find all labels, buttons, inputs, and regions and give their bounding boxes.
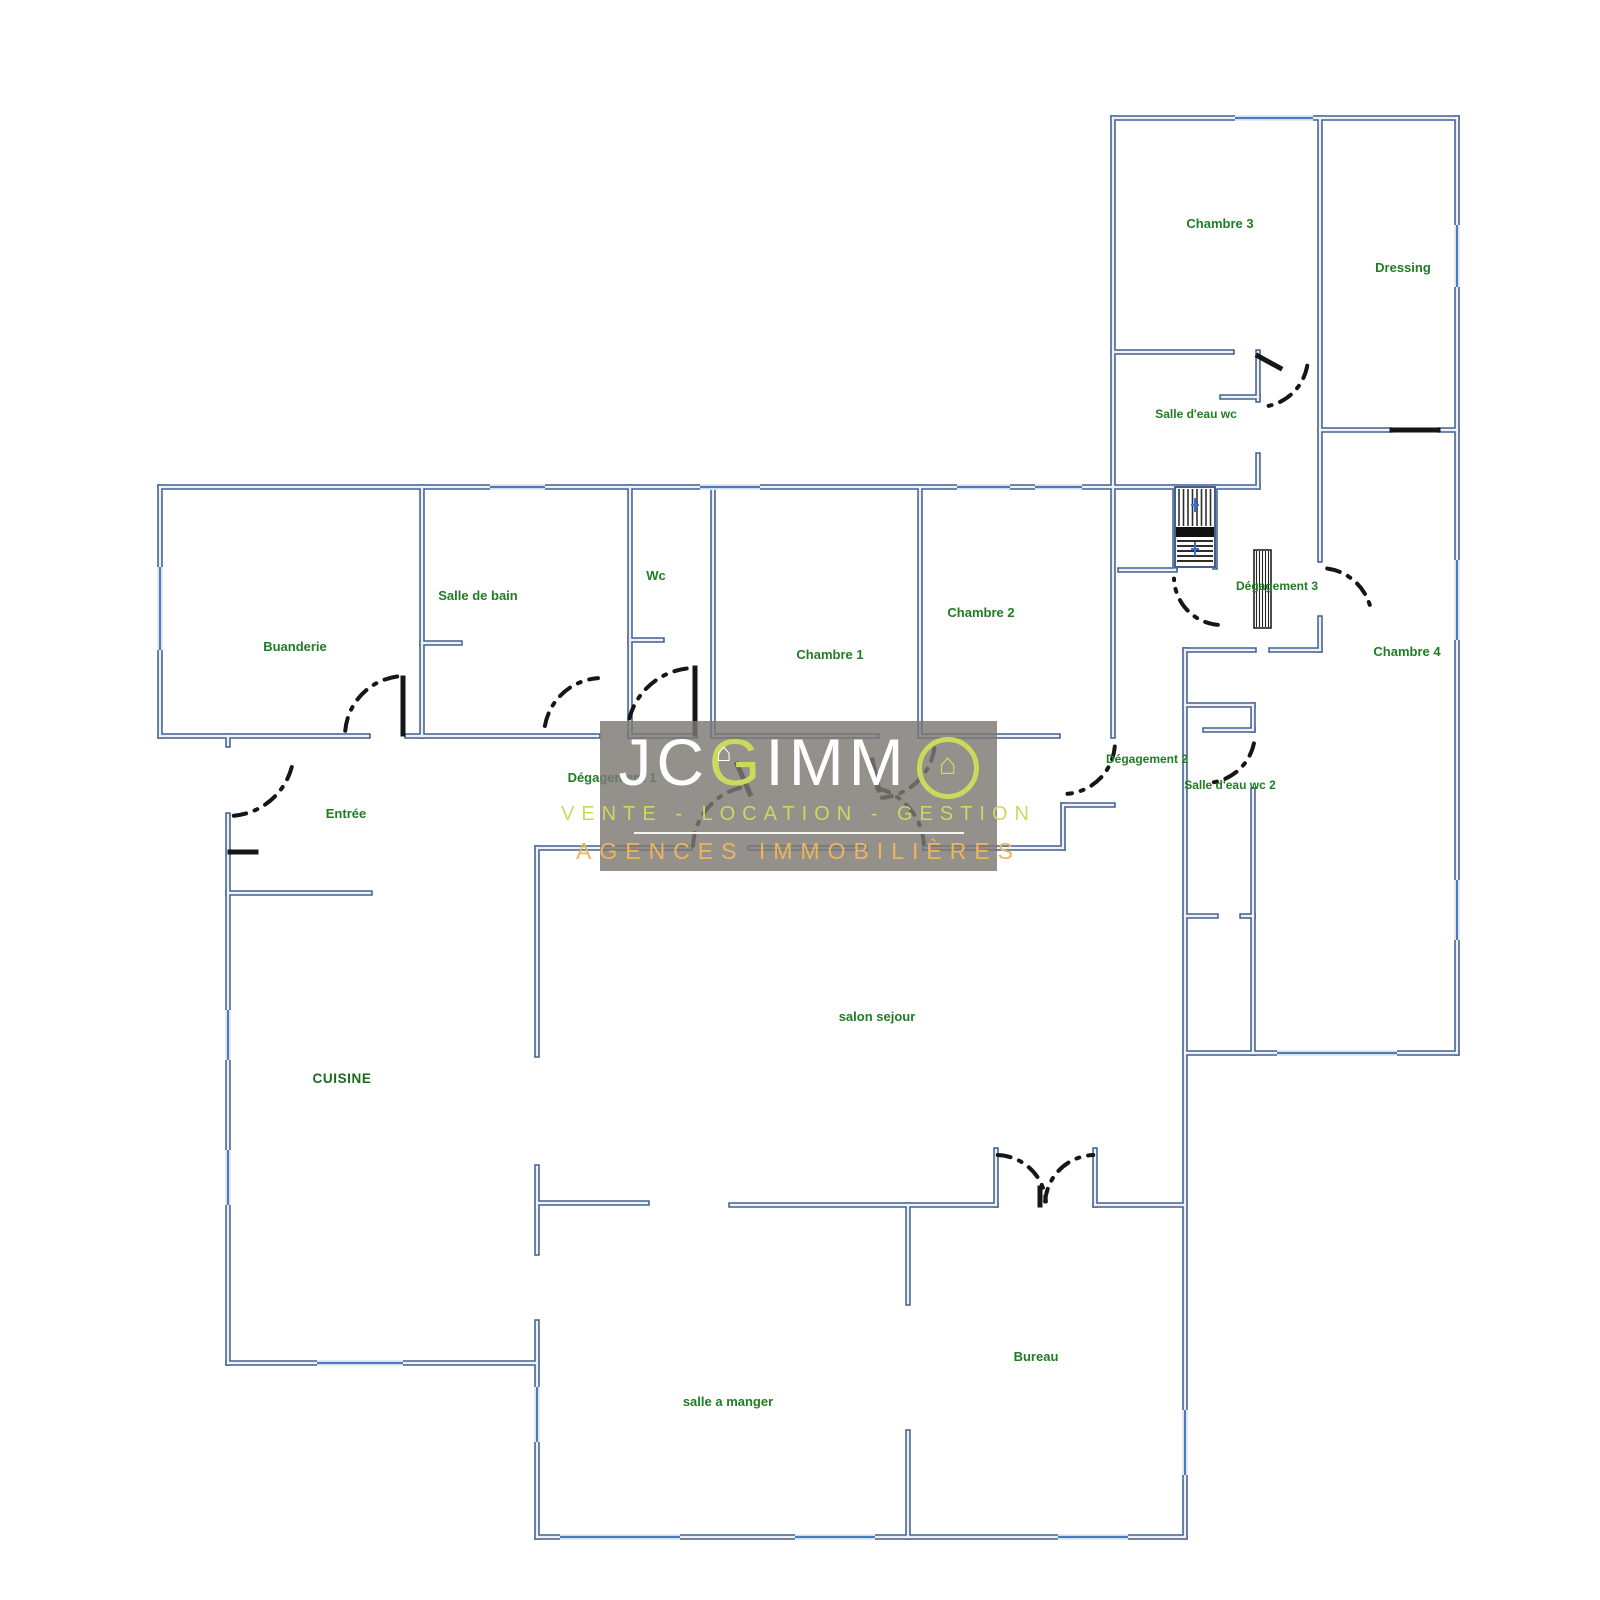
agency-subtitle: AGENCES IMMOBILIÈRES bbox=[576, 838, 1021, 865]
logo-letters-jc: JC bbox=[618, 726, 709, 798]
room-label: Wc bbox=[646, 568, 666, 583]
room-label: Dégagement 2 bbox=[1106, 752, 1188, 766]
logo-letters-imm: IMM bbox=[765, 726, 908, 798]
agency-tagline: VENTE - LOCATION - GESTION bbox=[561, 803, 1036, 826]
door-swing-arc bbox=[1045, 1155, 1093, 1201]
room-label: Salle de bain bbox=[438, 588, 518, 603]
door-swing-arc bbox=[1212, 743, 1254, 782]
watermark-divider bbox=[634, 832, 964, 834]
room-label: CUISINE bbox=[313, 1071, 372, 1086]
room-label: Chambre 3 bbox=[1186, 216, 1253, 231]
room-label: Chambre 1 bbox=[796, 647, 863, 662]
door-swing-arc bbox=[629, 669, 686, 719]
room-label: Bureau bbox=[1014, 1349, 1059, 1364]
door-swing-arc bbox=[1174, 579, 1218, 625]
room-label: Chambre 2 bbox=[947, 605, 1014, 620]
door-swing-arc bbox=[234, 767, 292, 816]
door-swing-arc bbox=[1268, 366, 1307, 406]
logo-house-icon-large: ⌂ bbox=[922, 750, 974, 780]
agency-logo: JC G ⌂ IMM ⌂ bbox=[618, 723, 978, 801]
room-label: Buanderie bbox=[263, 639, 327, 654]
logo-o-ring-icon: ⌂ bbox=[917, 737, 979, 799]
logo-letter-g: G ⌂ bbox=[709, 726, 765, 798]
room-label: salle a manger bbox=[683, 1394, 773, 1409]
door-leaf bbox=[1258, 356, 1280, 368]
floor-plan-page: Chambre 3DressingSalle d'eau wcBuanderie… bbox=[0, 0, 1600, 1600]
room-label: Dégagement 3 bbox=[1236, 579, 1318, 593]
room-label: Salle d'eau wc bbox=[1155, 407, 1237, 421]
room-label: Dressing bbox=[1375, 260, 1431, 275]
room-label: Salle d'eau wc 2 bbox=[1184, 778, 1276, 792]
room-label: Entrée bbox=[326, 806, 366, 821]
door-swing-arc bbox=[545, 678, 598, 726]
stair-landing bbox=[1176, 527, 1214, 537]
door-swing-arc bbox=[345, 676, 403, 731]
room-label: Chambre 4 bbox=[1373, 644, 1441, 659]
room-label: salon sejour bbox=[839, 1009, 916, 1024]
door-swing-arc bbox=[1327, 569, 1371, 611]
agency-watermark: JC G ⌂ IMM ⌂ VENTE - LOCATION - GESTION … bbox=[600, 721, 997, 871]
logo-house-icon-small: ⌂ bbox=[716, 739, 732, 765]
